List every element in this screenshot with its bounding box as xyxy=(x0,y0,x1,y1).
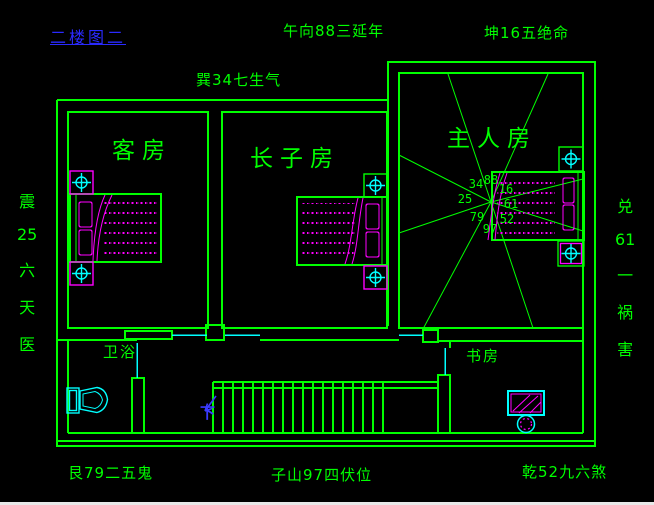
room-label-guest: 客房 xyxy=(112,140,172,163)
toilet-icon xyxy=(67,388,108,414)
annotation-bottom-center: 子山97四伏位 xyxy=(271,468,372,483)
compass-number-n: 88 xyxy=(484,173,498,187)
annotation-right-char: 兑 xyxy=(617,193,633,217)
light-fixture-icon xyxy=(70,262,93,285)
annotation-left-char: 25 xyxy=(17,225,37,244)
light-fixture-icon xyxy=(364,174,387,197)
light-fixture-icon xyxy=(558,241,584,266)
compass-number-e: 61 xyxy=(504,197,518,211)
annotation-top-center: 午向88三延年 xyxy=(283,24,384,39)
annotation-left-char: 天 xyxy=(19,294,35,318)
light-fixture-icon xyxy=(364,266,387,289)
staircase xyxy=(213,382,437,433)
floor-plan-drawing xyxy=(0,0,654,505)
stairs-down-label: 下 xyxy=(200,402,215,423)
annotation-right-char: 61 xyxy=(615,230,635,249)
eldest-son-room-bed xyxy=(297,197,388,265)
annotation-left-char: 六 xyxy=(19,257,35,281)
chair-icon xyxy=(518,416,535,433)
bagua-star-lines xyxy=(399,74,583,329)
compass-number-s: 97 xyxy=(483,222,497,236)
annotation-upper-left: 巽34七生气 xyxy=(196,73,281,88)
room-label-eldest-son: 长子房 xyxy=(250,148,340,171)
annotation-top-right: 坤16五绝命 xyxy=(484,26,569,41)
annotation-left-vertical: 震 25 六 天 医 xyxy=(17,188,37,355)
annotation-bottom-left: 艮79二五鬼 xyxy=(68,466,153,481)
desk-icon xyxy=(508,391,544,415)
annotation-left-char: 医 xyxy=(19,331,35,355)
compass-number-nw: 34 xyxy=(469,177,483,191)
annotation-right-char: 害 xyxy=(617,336,633,360)
compass-number-ne: 16 xyxy=(499,182,513,196)
room-label-study: 书房 xyxy=(466,349,500,364)
door-lines xyxy=(137,335,445,378)
drawing-title: 二楼图二 xyxy=(50,30,126,46)
light-fixture-icon xyxy=(559,147,583,171)
light-fixture-icon xyxy=(70,171,93,194)
annotation-right-char: 一 xyxy=(617,262,633,286)
floor-plan-canvas: 二楼图二 午向88三延年 坤16五绝命 巽34七生气 震 25 六 天 医 兑 … xyxy=(0,0,654,505)
compass-number-w: 25 xyxy=(458,192,472,206)
annotation-right-char: 祸 xyxy=(617,299,633,323)
room-label-master: 主人房 xyxy=(447,128,537,151)
compass-number-se: 52 xyxy=(500,212,514,226)
annotation-right-vertical: 兑 61 一 祸 害 xyxy=(615,193,635,360)
room-label-bathroom: 卫浴 xyxy=(103,345,137,360)
guest-room-bed xyxy=(70,194,161,262)
annotation-left-char: 震 xyxy=(19,188,35,212)
annotation-bottom-right: 乾52九六煞 xyxy=(522,465,607,480)
